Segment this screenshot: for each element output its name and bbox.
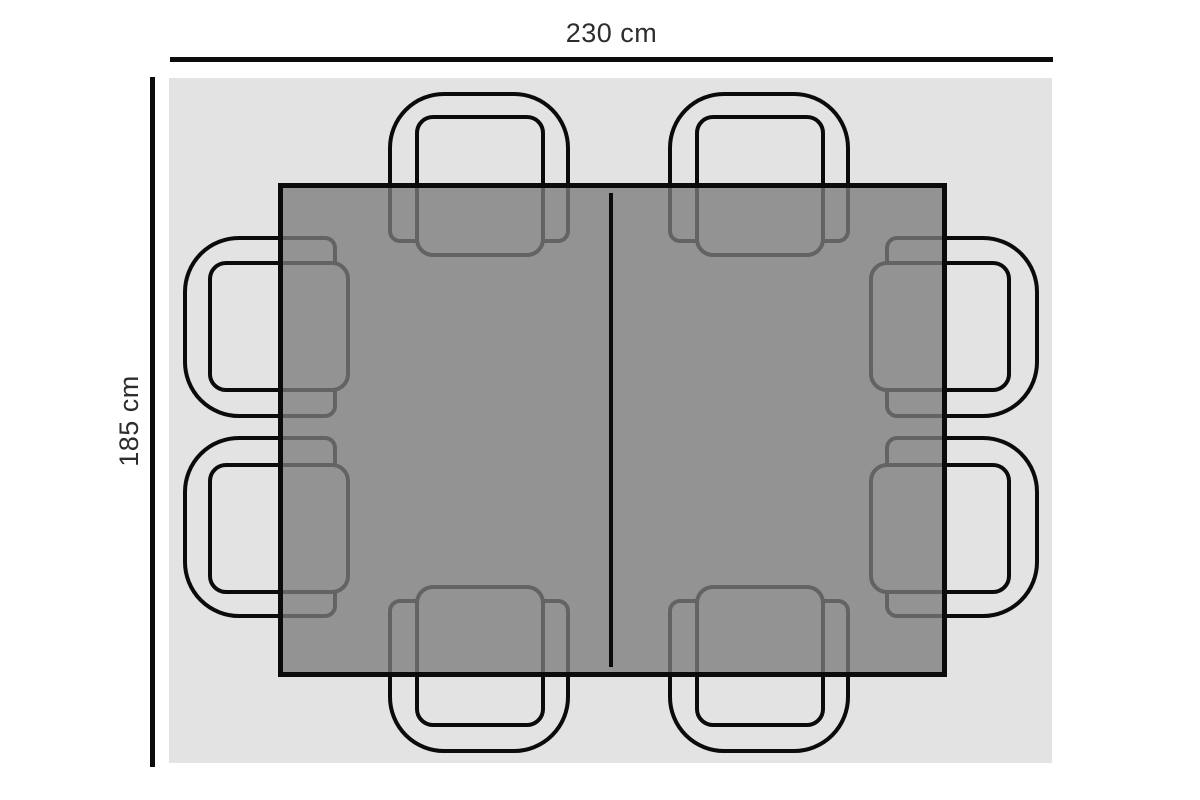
floor-area — [169, 78, 1052, 763]
table-leaf-split-line — [609, 193, 613, 667]
dimension-diagram: 230 cm 185 cm — [0, 0, 1200, 800]
width-dimension-line — [170, 57, 1053, 62]
height-dimension-label: 185 cm — [112, 361, 146, 481]
height-dimension-line — [150, 77, 155, 767]
width-dimension-label: 230 cm — [170, 16, 1053, 50]
